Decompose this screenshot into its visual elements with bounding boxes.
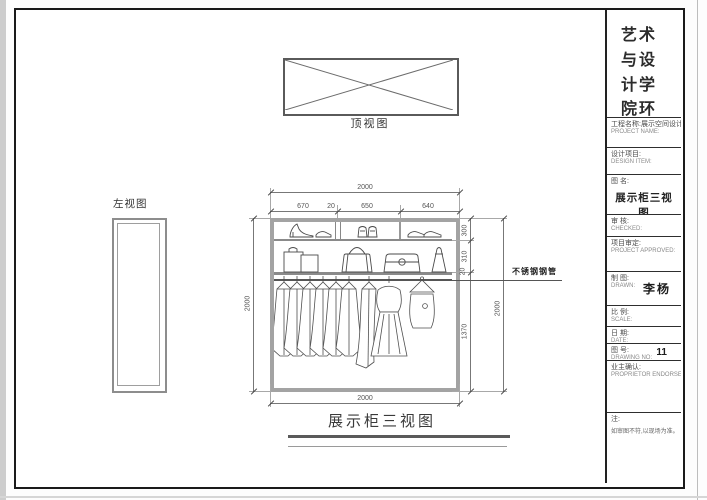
note-label: 注:	[611, 415, 677, 424]
dim-right-1370: 1370	[462, 319, 469, 345]
title-block-header: 艺术与设计学院环境设计 11001班	[607, 10, 681, 118]
design-item-cn: 设计项目:	[611, 150, 677, 159]
approved-cn: 项目审定:	[611, 239, 677, 248]
dim-line-top-chain	[270, 211, 460, 212]
scale-en: SCALE:	[611, 317, 677, 325]
dim-left-height: 2000	[245, 291, 252, 317]
shoes-row-icon	[274, 222, 452, 239]
caption-underline-thick	[288, 435, 510, 438]
design-item-cell: 设计项目: DESIGN ITEM:	[607, 148, 681, 175]
top-view-diagonals-icon	[285, 60, 453, 110]
date-cn: 日 期:	[611, 329, 677, 338]
dim-seg-640: 640	[412, 203, 444, 210]
drawn-value: 李杨	[643, 280, 671, 297]
scan-edge-bottom	[0, 496, 707, 498]
project-name-en: PROJECT NAME:	[611, 129, 677, 137]
dim-seg-650: 650	[352, 203, 382, 210]
top-view-rect	[283, 58, 459, 116]
approved-en: PROJECT APPROVED:	[611, 248, 677, 256]
dim-top-overall: 2000	[335, 184, 395, 191]
project-name-cn: 工程名称:展示空间设计	[611, 120, 677, 129]
rod-leader-line	[437, 280, 562, 281]
dim-line-bottom	[270, 403, 460, 404]
bags-row-icon	[274, 243, 452, 273]
title-block: 艺术与设计学院环境设计 11001班 工程名称:展示空间设计 PROJECT N…	[605, 10, 681, 483]
drawing-no-cn: 图 号:	[611, 346, 677, 355]
dim-line-left	[253, 218, 254, 392]
left-view-rect-inner	[117, 223, 160, 386]
dim-bottom-width: 2000	[335, 395, 395, 402]
caption-underline-thin	[288, 446, 507, 447]
drawing-sheet: 顶视图 左视图	[0, 0, 707, 500]
dim-seg-20: 20	[322, 203, 340, 210]
hanging-clothes-icon	[274, 276, 452, 384]
drawing-no-cell: 图 号: DRAWING NO: 11	[607, 344, 681, 361]
drawing-name-cell: 图 名: 展示柜三视图	[607, 175, 681, 215]
dim-line-top-overall	[270, 192, 460, 193]
proprietor-cell: 业主确认: PROPRIETOR ENDORSE:	[607, 361, 681, 413]
drawn-cell: 制 图: DRAWN: 李杨	[607, 272, 681, 306]
dim-seg-670: 670	[288, 203, 318, 210]
note-cell: 注: 如审图不符,以现场为准。	[607, 413, 681, 483]
ext-line	[452, 391, 507, 392]
checked-cn: 审 核:	[611, 217, 677, 226]
drawing-name-value: 展示柜三视图	[611, 190, 677, 215]
approved-cell: 项目审定: PROJECT APPROVED:	[607, 237, 681, 272]
project-name-cell: 工程名称:展示空间设计 PROJECT NAME:	[607, 118, 681, 148]
drawing-name-label: 图 名:	[611, 177, 677, 186]
note-text: 如审图不符,以现场为准。	[611, 426, 677, 435]
date-cell: 日 期: DATE:	[607, 327, 681, 344]
drawing-no-value: 11	[656, 347, 667, 358]
dim-right-300: 300	[462, 218, 469, 244]
rod-label: 不锈钢钢管	[512, 266, 557, 277]
school-title: 艺术与设计学院环境设计	[611, 12, 677, 118]
front-view-caption: 展示柜三视图	[328, 410, 436, 431]
top-view-label: 顶视图	[328, 115, 412, 131]
dim-line-right-overall	[503, 218, 504, 392]
checked-cell: 审 核: CHECKED:	[607, 215, 681, 237]
cabinet-shelf-1	[274, 239, 452, 241]
dim-right-overall: 2000	[495, 296, 502, 322]
dim-line-right-chain	[470, 218, 471, 392]
checked-en: CHECKED:	[611, 226, 677, 234]
ext-line	[452, 218, 507, 219]
scale-cn: 比 例:	[611, 308, 677, 317]
proprietor-en: PROPRIETOR ENDORSE:	[611, 372, 677, 380]
scan-edge-right	[697, 0, 698, 500]
scale-cell: 比 例: SCALE:	[607, 306, 681, 327]
design-item-en: DESIGN ITEM:	[611, 159, 677, 167]
left-view-rect-outer	[112, 218, 167, 393]
proprietor-cn: 业主确认:	[611, 363, 677, 372]
scan-edge-left	[0, 0, 6, 500]
left-view-label: 左视图	[113, 196, 148, 211]
